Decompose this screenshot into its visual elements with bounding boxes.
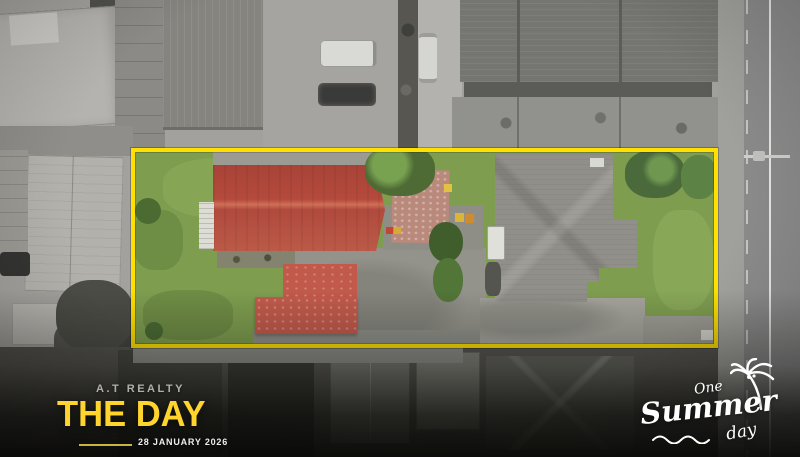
logo-word-main: Summer <box>639 383 779 431</box>
title-underline <box>79 444 132 446</box>
aerial-photo: A.T REALTY THE DAY 28 JANUARY 2026 One S… <box>0 0 800 457</box>
campaign-date: 28 JANUARY 2026 <box>138 437 228 447</box>
logo-word-bottom: day <box>724 419 758 444</box>
campaign-title: THE DAY <box>57 393 206 435</box>
wave-icon <box>652 432 714 444</box>
summer-logo: One Summer day <box>638 358 794 457</box>
